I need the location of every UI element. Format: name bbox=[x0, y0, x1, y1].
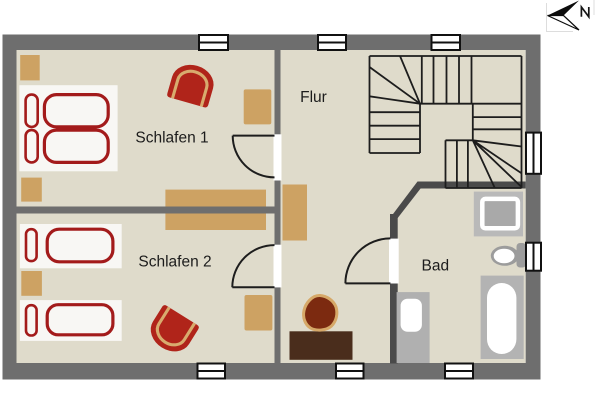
svg-text:Bad: Bad bbox=[422, 257, 450, 274]
svg-text:Schlafen 1: Schlafen 1 bbox=[135, 130, 208, 147]
svg-text:Schlafen 2: Schlafen 2 bbox=[138, 254, 211, 271]
svg-text:Flur: Flur bbox=[300, 89, 327, 106]
